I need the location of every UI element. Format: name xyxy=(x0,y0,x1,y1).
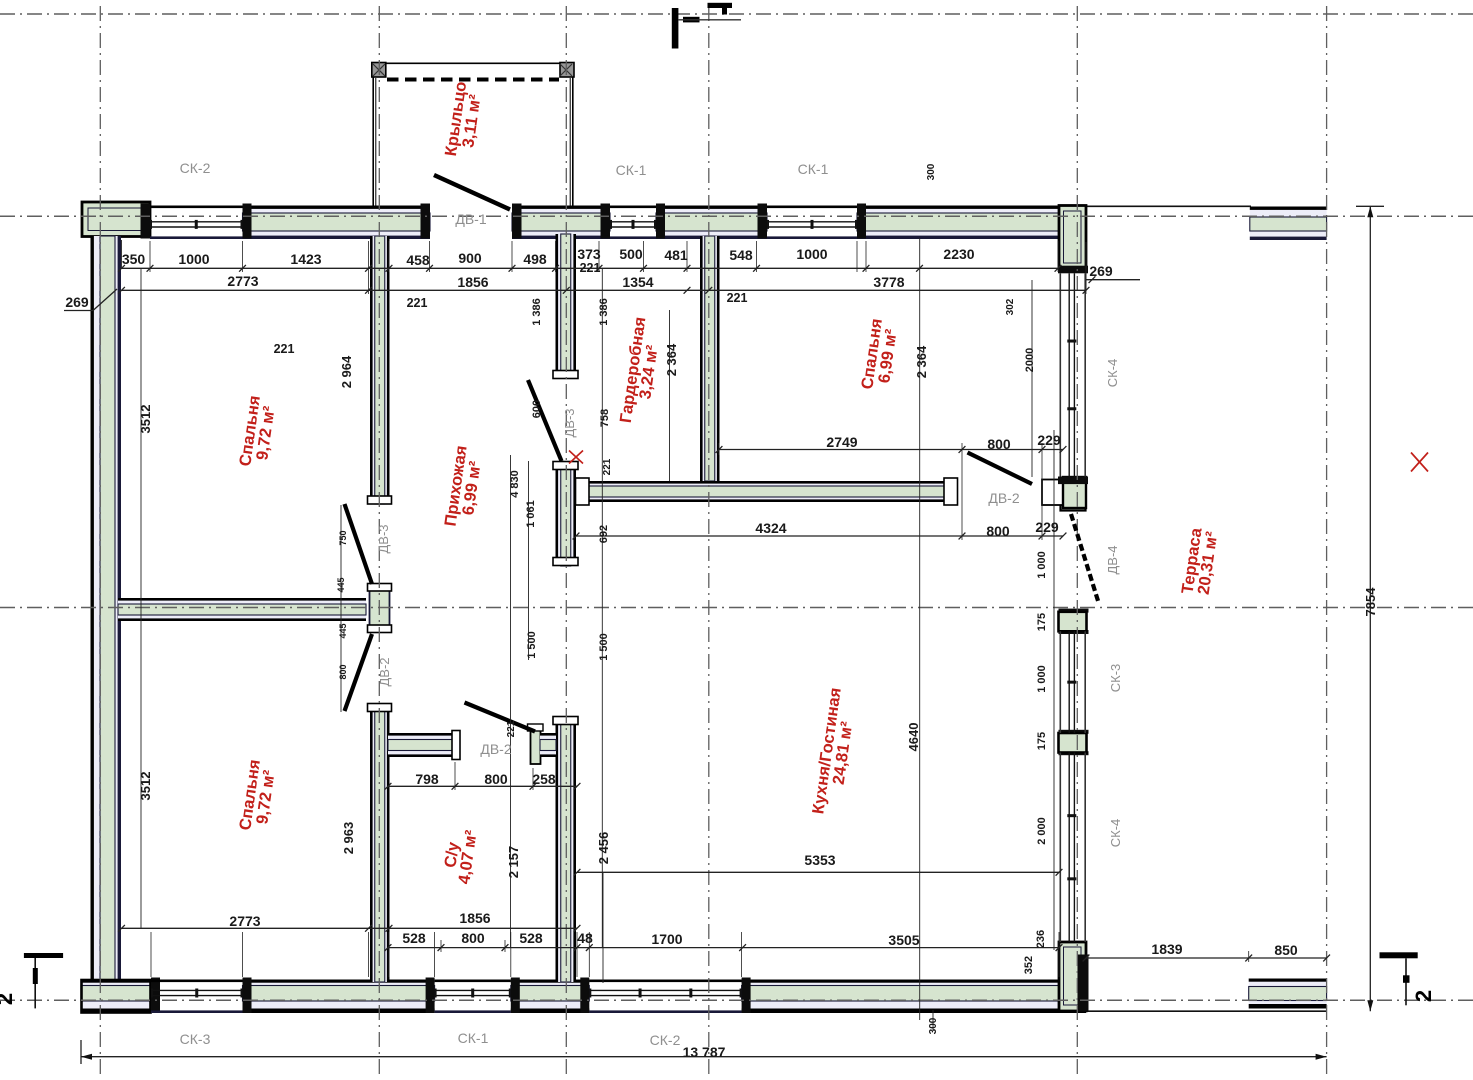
svg-text:СК-1: СК-1 xyxy=(458,1030,489,1046)
svg-text:850: 850 xyxy=(1274,942,1298,958)
svg-text:ДВ-4: ДВ-4 xyxy=(1105,545,1120,574)
svg-text:498: 498 xyxy=(523,251,547,267)
svg-text:ДВ-2: ДВ-2 xyxy=(480,741,511,757)
svg-text:СК-4: СК-4 xyxy=(1105,359,1120,388)
svg-text:СК-2: СК-2 xyxy=(180,160,211,176)
svg-text:1 000: 1 000 xyxy=(1036,551,1048,579)
svg-text:СК-4: СК-4 xyxy=(1108,819,1123,848)
svg-text:300: 300 xyxy=(926,163,937,180)
svg-text:1856: 1856 xyxy=(457,274,488,290)
svg-text:750: 750 xyxy=(338,530,348,545)
svg-text:1 500: 1 500 xyxy=(598,633,610,661)
svg-text:800: 800 xyxy=(484,771,508,787)
svg-text:800: 800 xyxy=(986,523,1010,539)
svg-text:221: 221 xyxy=(506,720,517,737)
svg-text:ДВ-1: ДВ-1 xyxy=(455,211,486,227)
svg-text:СК-3: СК-3 xyxy=(180,1031,211,1047)
svg-text:352: 352 xyxy=(1023,956,1035,974)
svg-text:СК-2: СК-2 xyxy=(650,1032,681,1048)
svg-text:269: 269 xyxy=(1089,263,1113,279)
svg-text:2 000: 2 000 xyxy=(1036,817,1048,845)
svg-text:221: 221 xyxy=(727,291,748,305)
svg-text:3505: 3505 xyxy=(888,932,919,948)
svg-text:2 157: 2 157 xyxy=(506,846,521,879)
svg-text:2: 2 xyxy=(0,993,17,1005)
svg-text:ДВ-3: ДВ-3 xyxy=(562,408,577,437)
svg-text:175: 175 xyxy=(1036,613,1048,631)
svg-text:300: 300 xyxy=(928,1017,939,1034)
svg-text:1700: 1700 xyxy=(651,931,682,947)
svg-text:СК-1: СК-1 xyxy=(798,161,829,177)
svg-text:229: 229 xyxy=(1035,519,1059,535)
svg-text:900: 900 xyxy=(458,250,482,266)
svg-text:1839: 1839 xyxy=(1151,941,1182,957)
svg-text:1423: 1423 xyxy=(290,251,321,267)
svg-text:2 364: 2 364 xyxy=(914,345,929,378)
svg-text:800: 800 xyxy=(987,436,1011,452)
svg-text:3512: 3512 xyxy=(138,772,153,801)
svg-text:373: 373 xyxy=(577,246,601,262)
svg-text:800: 800 xyxy=(461,930,485,946)
svg-text:4 830: 4 830 xyxy=(509,470,521,498)
svg-text:758: 758 xyxy=(599,409,611,427)
svg-text:5353: 5353 xyxy=(804,852,835,868)
svg-text:48: 48 xyxy=(577,930,593,946)
svg-text:2: 2 xyxy=(1411,990,1436,1002)
svg-text:458: 458 xyxy=(406,252,430,268)
svg-text:221: 221 xyxy=(274,342,295,356)
svg-text:221: 221 xyxy=(580,261,601,275)
svg-text:445: 445 xyxy=(336,577,346,592)
svg-text:481: 481 xyxy=(664,247,688,263)
svg-text:1000: 1000 xyxy=(796,246,827,262)
svg-text:229: 229 xyxy=(1037,432,1061,448)
svg-text:1 386: 1 386 xyxy=(598,298,610,326)
svg-text:7854: 7854 xyxy=(1363,587,1378,617)
svg-text:1856: 1856 xyxy=(459,910,490,926)
svg-text:1 386: 1 386 xyxy=(531,298,543,326)
svg-text:548: 548 xyxy=(729,247,753,263)
svg-text:2 963: 2 963 xyxy=(341,822,356,855)
svg-text:1354: 1354 xyxy=(622,274,653,290)
svg-text:798: 798 xyxy=(415,771,439,787)
svg-text:2 456: 2 456 xyxy=(596,832,611,865)
svg-text:2773: 2773 xyxy=(229,913,260,929)
svg-text:302: 302 xyxy=(1005,298,1016,315)
svg-text:692: 692 xyxy=(598,525,610,543)
svg-text:2773: 2773 xyxy=(227,273,258,289)
svg-text:1 000: 1 000 xyxy=(1036,665,1048,693)
svg-text:1 500: 1 500 xyxy=(526,631,538,659)
svg-text:800: 800 xyxy=(338,664,348,679)
svg-text:2 364: 2 364 xyxy=(664,343,679,376)
svg-text:445: 445 xyxy=(338,623,348,638)
svg-text:ДВ-3: ДВ-3 xyxy=(376,524,391,553)
svg-text:528: 528 xyxy=(402,930,426,946)
svg-text:3512: 3512 xyxy=(138,405,153,434)
svg-text:1000: 1000 xyxy=(178,251,209,267)
svg-text:2230: 2230 xyxy=(943,246,974,262)
svg-text:13 787: 13 787 xyxy=(683,1044,726,1060)
svg-text:ДВ-2: ДВ-2 xyxy=(988,490,1019,506)
svg-text:1 061: 1 061 xyxy=(525,500,537,528)
svg-text:350: 350 xyxy=(122,251,146,267)
svg-text:221: 221 xyxy=(407,296,428,310)
svg-text:236: 236 xyxy=(1035,930,1047,948)
svg-text:2749: 2749 xyxy=(826,434,857,450)
svg-text:500: 500 xyxy=(619,246,643,262)
svg-text:СК-3: СК-3 xyxy=(1108,664,1123,693)
svg-text:3778: 3778 xyxy=(873,274,904,290)
svg-text:269: 269 xyxy=(65,294,89,310)
svg-text:2 964: 2 964 xyxy=(339,355,354,388)
svg-text:4324: 4324 xyxy=(755,520,786,536)
svg-text:ДВ-2: ДВ-2 xyxy=(377,657,392,686)
svg-text:258: 258 xyxy=(532,771,556,787)
svg-text:2000: 2000 xyxy=(1024,348,1036,372)
svg-text:4640: 4640 xyxy=(906,723,921,752)
svg-text:528: 528 xyxy=(519,930,543,946)
svg-text:221: 221 xyxy=(602,458,613,475)
svg-text:175: 175 xyxy=(1036,732,1048,750)
svg-text:600: 600 xyxy=(531,400,543,418)
svg-text:СК-1: СК-1 xyxy=(616,162,647,178)
